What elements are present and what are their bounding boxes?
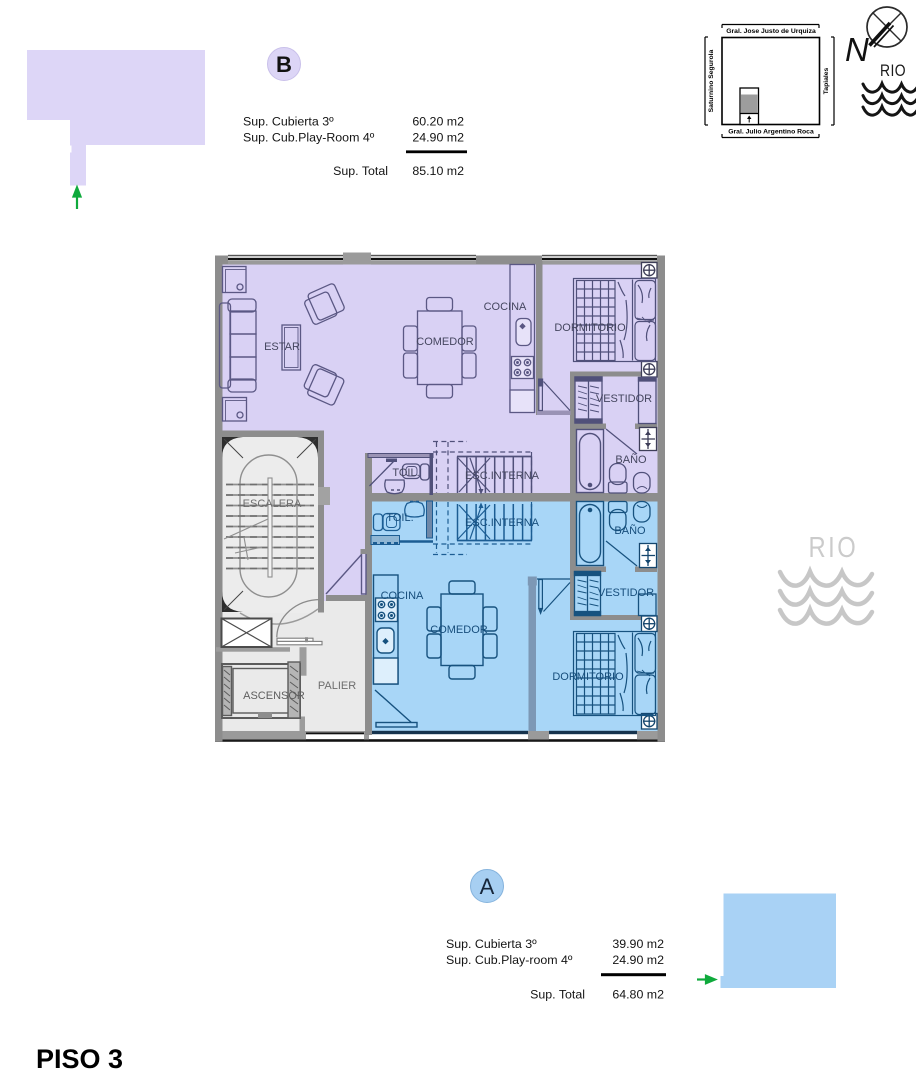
svg-text:Gral. Jose Justo de Urquiza: Gral. Jose Justo de Urquiza — [726, 28, 816, 35]
svg-text:Saturnino Segurola: Saturnino Segurola — [708, 49, 715, 112]
svg-text:Sup. Cubierta 3º: Sup. Cubierta 3º — [243, 115, 334, 129]
svg-text:BAÑO: BAÑO — [614, 524, 646, 537]
svg-text:BAÑO: BAÑO — [615, 453, 647, 466]
svg-text:COMEDOR: COMEDOR — [430, 624, 488, 636]
svg-text:A: A — [480, 874, 495, 899]
svg-text:ASCENSOR: ASCENSOR — [243, 690, 305, 702]
svg-text:RIO: RIO — [809, 531, 859, 564]
svg-text:VESTIDOR: VESTIDOR — [596, 393, 652, 405]
svg-text:VESTIDOR: VESTIDOR — [598, 587, 654, 599]
svg-text:Tapiales: Tapiales — [823, 67, 830, 94]
svg-text:COCINA: COCINA — [381, 590, 424, 602]
svg-text:Sup. Cub.Play-Room 4º: Sup. Cub.Play-Room 4º — [243, 131, 375, 145]
svg-text:COCINA: COCINA — [484, 301, 527, 313]
svg-text:COMEDOR: COMEDOR — [416, 336, 474, 348]
svg-text:64.80 m2: 64.80 m2 — [612, 988, 664, 1002]
svg-text:ESCALERA: ESCALERA — [243, 498, 302, 510]
svg-text:TOIL.: TOIL. — [386, 512, 413, 524]
svg-text:Sup. Cub.Play-room 4º: Sup. Cub.Play-room 4º — [446, 953, 573, 967]
svg-text:PALIER: PALIER — [318, 680, 356, 692]
svg-text:39.90 m2: 39.90 m2 — [612, 937, 664, 951]
svg-text:85.10 m2: 85.10 m2 — [412, 164, 464, 178]
svg-text:ESTAR: ESTAR — [264, 341, 300, 353]
svg-text:Sup. Total: Sup. Total — [530, 988, 585, 1002]
svg-text:ESC.INTERNA: ESC.INTERNA — [465, 517, 540, 529]
svg-text:PISO 3: PISO 3 — [36, 1044, 123, 1074]
svg-text:RIO: RIO — [880, 62, 906, 81]
svg-text:Sup. Total: Sup. Total — [333, 164, 388, 178]
svg-text:TOIL.: TOIL. — [392, 467, 419, 479]
svg-text:24.90 m2: 24.90 m2 — [612, 953, 664, 967]
svg-text:B: B — [276, 52, 292, 77]
svg-text:Sup. Cubierta 3º: Sup. Cubierta 3º — [446, 937, 537, 951]
svg-text:Gral. Julio Argentino Roca: Gral. Julio Argentino Roca — [728, 129, 814, 136]
svg-text:60.20 m2: 60.20 m2 — [412, 115, 464, 129]
svg-text:ESC.INTERNA: ESC.INTERNA — [465, 470, 540, 482]
svg-text:DORMITORIO: DORMITORIO — [554, 322, 626, 334]
svg-text:N: N — [845, 31, 869, 68]
svg-text:24.90 m2: 24.90 m2 — [412, 131, 464, 145]
svg-text:DORMITORIO: DORMITORIO — [552, 671, 624, 683]
